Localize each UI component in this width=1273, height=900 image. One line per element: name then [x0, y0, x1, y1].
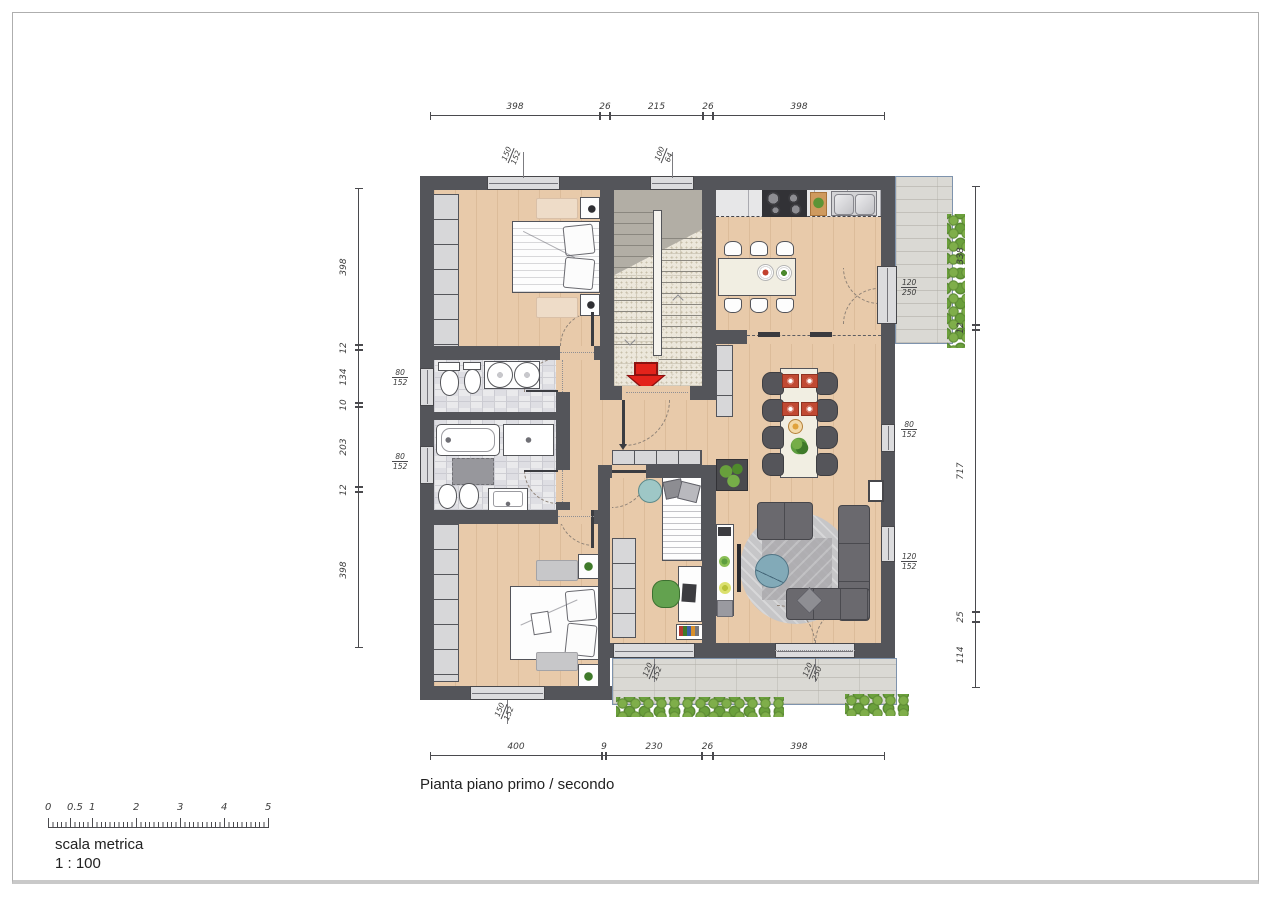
window-width-value: 80	[392, 452, 408, 462]
dim-bottom-label-0: 400	[507, 742, 524, 752]
bidet-bathroom2	[438, 484, 457, 509]
dim-bottom-segment-0: 400	[430, 755, 602, 756]
scale-major-tick-2	[92, 818, 93, 828]
dim-top-label-0: 398	[506, 102, 523, 112]
wall-stair-right	[702, 190, 716, 400]
door-leaf-bathroom1	[526, 390, 558, 392]
window-width-value: 80	[392, 368, 408, 378]
sliding-door-panel-2	[810, 332, 832, 337]
wardrobe-bedroom1	[433, 194, 459, 350]
rug-bedroom1-a	[536, 198, 578, 219]
window-height-value: 152	[392, 378, 408, 387]
dim-bottom-segment-4: 398	[713, 755, 885, 756]
dim-bottom-label-4: 398	[790, 742, 807, 752]
dim-top-segment-0: 398	[430, 115, 600, 116]
dim-left-segment-2: 134	[358, 350, 359, 403]
door-leaf-bedroom1	[591, 312, 594, 346]
leader-bedroom1-window	[523, 152, 524, 178]
kitchen-chair-top-3	[776, 241, 794, 256]
storage-column-dining	[716, 345, 733, 417]
dim-left-label-0: 398	[339, 258, 349, 275]
window-size-label-living-right-window-upper: 80152	[901, 420, 917, 439]
threshold-bathroom2	[562, 470, 563, 502]
dim-right-label-2: 717	[956, 462, 966, 479]
coffee-table-round	[755, 554, 789, 588]
scale-major-tick-3	[136, 818, 137, 828]
scale-major-tick-4	[180, 818, 181, 828]
dim-top-segment-2: 215	[610, 115, 703, 116]
placemat-3	[782, 402, 799, 416]
rug-bedroom1-b	[536, 297, 578, 318]
window-size-label-bathroom1-left-window: 80152	[392, 368, 408, 387]
kitchen-chair-bottom-1	[724, 298, 742, 313]
scale-number-1: 0.5	[67, 802, 83, 813]
dim-right-label-3: 25	[956, 611, 966, 622]
shower-tray	[503, 424, 554, 456]
basin-round-left	[487, 362, 513, 388]
stair-steps-left	[614, 212, 657, 352]
dim-top-segment-4: 398	[713, 115, 885, 116]
tv-screen	[737, 544, 741, 592]
dim-right-segment-4: 114	[975, 622, 976, 688]
sideboard-plant-2	[719, 582, 731, 594]
pillow-bedroom1-b	[563, 257, 596, 290]
dim-bottom-segment-3: 26	[702, 755, 713, 756]
sink-basin-bathroom2	[493, 491, 523, 507]
window-bathroom1-left	[420, 368, 434, 406]
sideboard-plant-1	[719, 556, 730, 567]
wardrobe-bedroom3	[612, 538, 636, 638]
window-bedroom1-top	[487, 176, 560, 190]
opening-bedroom1-door	[560, 346, 594, 360]
dim-right-label-4: 114	[956, 646, 966, 663]
dim-left-label-1: 12	[339, 342, 349, 353]
threshold-bedroom2	[558, 516, 594, 517]
cutting-board	[810, 192, 827, 216]
dim-top-label-4: 398	[790, 102, 807, 112]
dim-left-label-2: 134	[339, 368, 349, 385]
window-bathroom2-left	[420, 446, 434, 484]
door-leaf-entry	[622, 400, 625, 446]
stair-stringer	[653, 210, 662, 356]
dim-left-segment-6: 398	[358, 492, 359, 648]
sideboard-speaker	[718, 527, 731, 536]
dim-right-segment-0: 338	[975, 186, 976, 325]
dim-left-label-5: 12	[339, 484, 349, 495]
threshold-bathroom1	[562, 360, 563, 392]
fruit-bowl	[788, 419, 803, 434]
dim-right-segment-2: 717	[975, 330, 976, 612]
scale-label: scala metrica	[55, 836, 143, 853]
window-bedroom2-bottom	[470, 686, 545, 700]
dim-right-label-0: 338	[956, 247, 966, 264]
dim-bottom-label-3: 26	[702, 742, 713, 752]
window-width-value: 120	[901, 552, 917, 562]
sink-basin-right	[855, 194, 875, 215]
side-table-bedroom3	[638, 479, 662, 503]
plate-green	[776, 265, 792, 281]
laptop-on-desk	[681, 584, 696, 603]
scale-number-0: 0	[45, 802, 51, 813]
window-size-label-bathroom2-left-window: 80152	[392, 452, 408, 471]
dining-chair-left-4	[762, 453, 784, 476]
door-leaf-bedroom3	[612, 470, 646, 473]
hedge-bottom-right	[845, 694, 909, 716]
scale-number-6: 5	[265, 802, 271, 813]
wall-bedroom2-bedroom3	[598, 465, 610, 700]
dining-chair-right-2	[816, 399, 838, 422]
dining-chair-right-3	[816, 426, 838, 449]
basin-round-right	[514, 362, 540, 388]
dim-top-segment-1: 26	[600, 115, 610, 116]
scale-number-3: 2	[133, 802, 139, 813]
kitchen-chair-bottom-3	[776, 298, 794, 313]
bathtub-inner	[441, 428, 495, 452]
threshold-bedroom1	[560, 352, 594, 353]
book-on-bed	[530, 611, 551, 636]
scale-major-tick-6	[268, 818, 269, 828]
threshold-living-balcony	[775, 650, 855, 651]
scale-number-5: 4	[221, 802, 227, 813]
window-living-right-lower	[881, 526, 895, 562]
scale-ratio: 1 : 100	[55, 855, 101, 872]
nightstand-bedroom1-a	[580, 197, 600, 219]
dim-top-label-2: 215	[648, 102, 665, 112]
bookshelf-bedroom3	[676, 624, 704, 640]
dim-top-label-1: 26	[599, 102, 610, 112]
hallway-cabinets	[612, 450, 702, 465]
wall-bathrooms-divider	[434, 412, 556, 420]
rug-bedroom2-b	[536, 652, 578, 671]
dining-chair-left-2	[762, 399, 784, 422]
stove-cooktop	[762, 190, 807, 217]
dim-top-label-3: 26	[702, 102, 713, 112]
opening-bathroom1-door	[556, 360, 570, 392]
dining-chair-right-4	[816, 453, 838, 476]
dim-right-label-1: 12	[956, 322, 966, 333]
sofa-section-top	[757, 502, 813, 540]
dim-bottom-label-1: 9	[601, 742, 607, 752]
window-width-value: 80	[901, 420, 917, 430]
wall-stair-left	[600, 190, 614, 400]
entry-arrow-shaft	[636, 364, 656, 374]
dim-top-segment-3: 26	[703, 115, 713, 116]
dim-left-label-6: 398	[339, 561, 349, 578]
sliding-door-panel-1	[758, 332, 780, 337]
bathmat-bathroom2	[452, 458, 494, 485]
sideboard-box	[717, 600, 733, 617]
wall-niche-flue	[868, 480, 884, 502]
dim-bottom-label-2: 230	[645, 742, 662, 752]
dim-bottom-segment-2: 230	[606, 755, 702, 756]
wardrobe-bedroom2	[433, 524, 459, 682]
opening-entry-door	[622, 386, 690, 400]
placemat-1	[782, 374, 799, 388]
window-height-value: 152	[901, 562, 917, 571]
dining-chair-left-3	[762, 426, 784, 449]
scale-major-tick-1	[70, 818, 71, 828]
nightstand-bedroom1-b	[580, 294, 600, 316]
window-stairwell-top	[650, 176, 694, 190]
kitchen-chair-top-2	[750, 241, 768, 256]
dining-chair-left-1	[762, 372, 784, 395]
wall-left	[420, 176, 434, 700]
scale-major-tick-0	[48, 818, 49, 828]
wall-living-left	[702, 465, 716, 643]
window-height-value: 250	[901, 288, 917, 297]
kitchen-chair-top-1	[724, 241, 742, 256]
dining-chair-right-1	[816, 372, 838, 395]
table-plant-centerpiece	[789, 436, 809, 456]
sink-basin-left	[834, 194, 854, 215]
scale-number-2: 1	[89, 802, 95, 813]
pillow-bedroom2-a	[565, 589, 598, 622]
window-height-value: 152	[901, 430, 917, 439]
window-size-label-living-right-window-lower: 120152	[901, 552, 917, 571]
placemat-4	[801, 402, 818, 416]
corner-plant	[716, 459, 748, 491]
dim-left-label-4: 203	[339, 438, 349, 455]
plan-title: Pianta piano primo / secondo	[420, 776, 614, 793]
window-size-label-kitchen-balcony-door: 120250	[901, 278, 917, 297]
door-leaf-entry-arrowhead	[619, 444, 627, 450]
stair-steps-right	[659, 238, 702, 380]
door-leaf-bathroom2	[524, 470, 558, 472]
dim-left-label-3: 10	[339, 399, 349, 410]
dim-right-segment-3: 25	[975, 612, 976, 622]
window-living-right-upper	[881, 424, 895, 452]
toilet-bathroom2	[459, 483, 479, 509]
dim-left-segment-4: 203	[358, 407, 359, 487]
desk-chair-green	[652, 580, 680, 608]
threshold-entry	[626, 392, 688, 393]
drawing-sheet: 3982621526398400923026398398121341020312…	[0, 0, 1273, 900]
opening-bathroom2-door	[556, 470, 570, 502]
plate-red	[757, 264, 774, 281]
bidet-bathroom1	[464, 369, 481, 394]
scale-ruler-minor-ticks	[48, 822, 269, 828]
terrace-top-right	[895, 176, 953, 344]
pillow-bedroom1-a	[563, 224, 596, 257]
hedge-bottom-left	[616, 697, 784, 717]
door-kitchen-balcony	[877, 266, 897, 324]
opening-bedroom2-door	[558, 510, 594, 524]
rug-bedroom2-a	[536, 560, 578, 581]
window-width-value: 120	[901, 278, 917, 288]
wall-right	[881, 176, 895, 658]
scale-number-4: 3	[177, 802, 183, 813]
placemat-2	[801, 374, 818, 388]
window-height-value: 152	[392, 462, 408, 471]
scale-major-tick-5	[224, 818, 225, 828]
dim-left-segment-0: 398	[358, 188, 359, 345]
kitchen-chair-bottom-2	[750, 298, 768, 313]
toilet-bathroom1	[440, 370, 459, 396]
window-bedroom3-bottom	[613, 643, 695, 658]
nightstand-bedroom2-a	[578, 554, 599, 579]
